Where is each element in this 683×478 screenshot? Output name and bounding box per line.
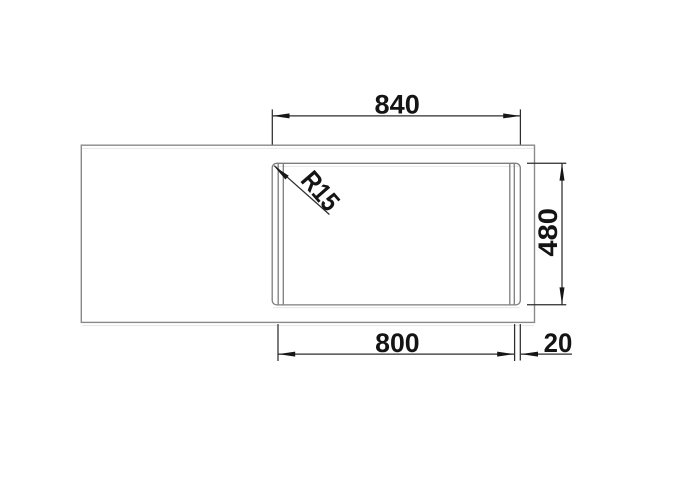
svg-text:800: 800 [375,328,420,358]
svg-text:480: 480 [533,208,563,257]
svg-text:840: 840 [375,89,420,119]
svg-text:20: 20 [544,328,573,358]
